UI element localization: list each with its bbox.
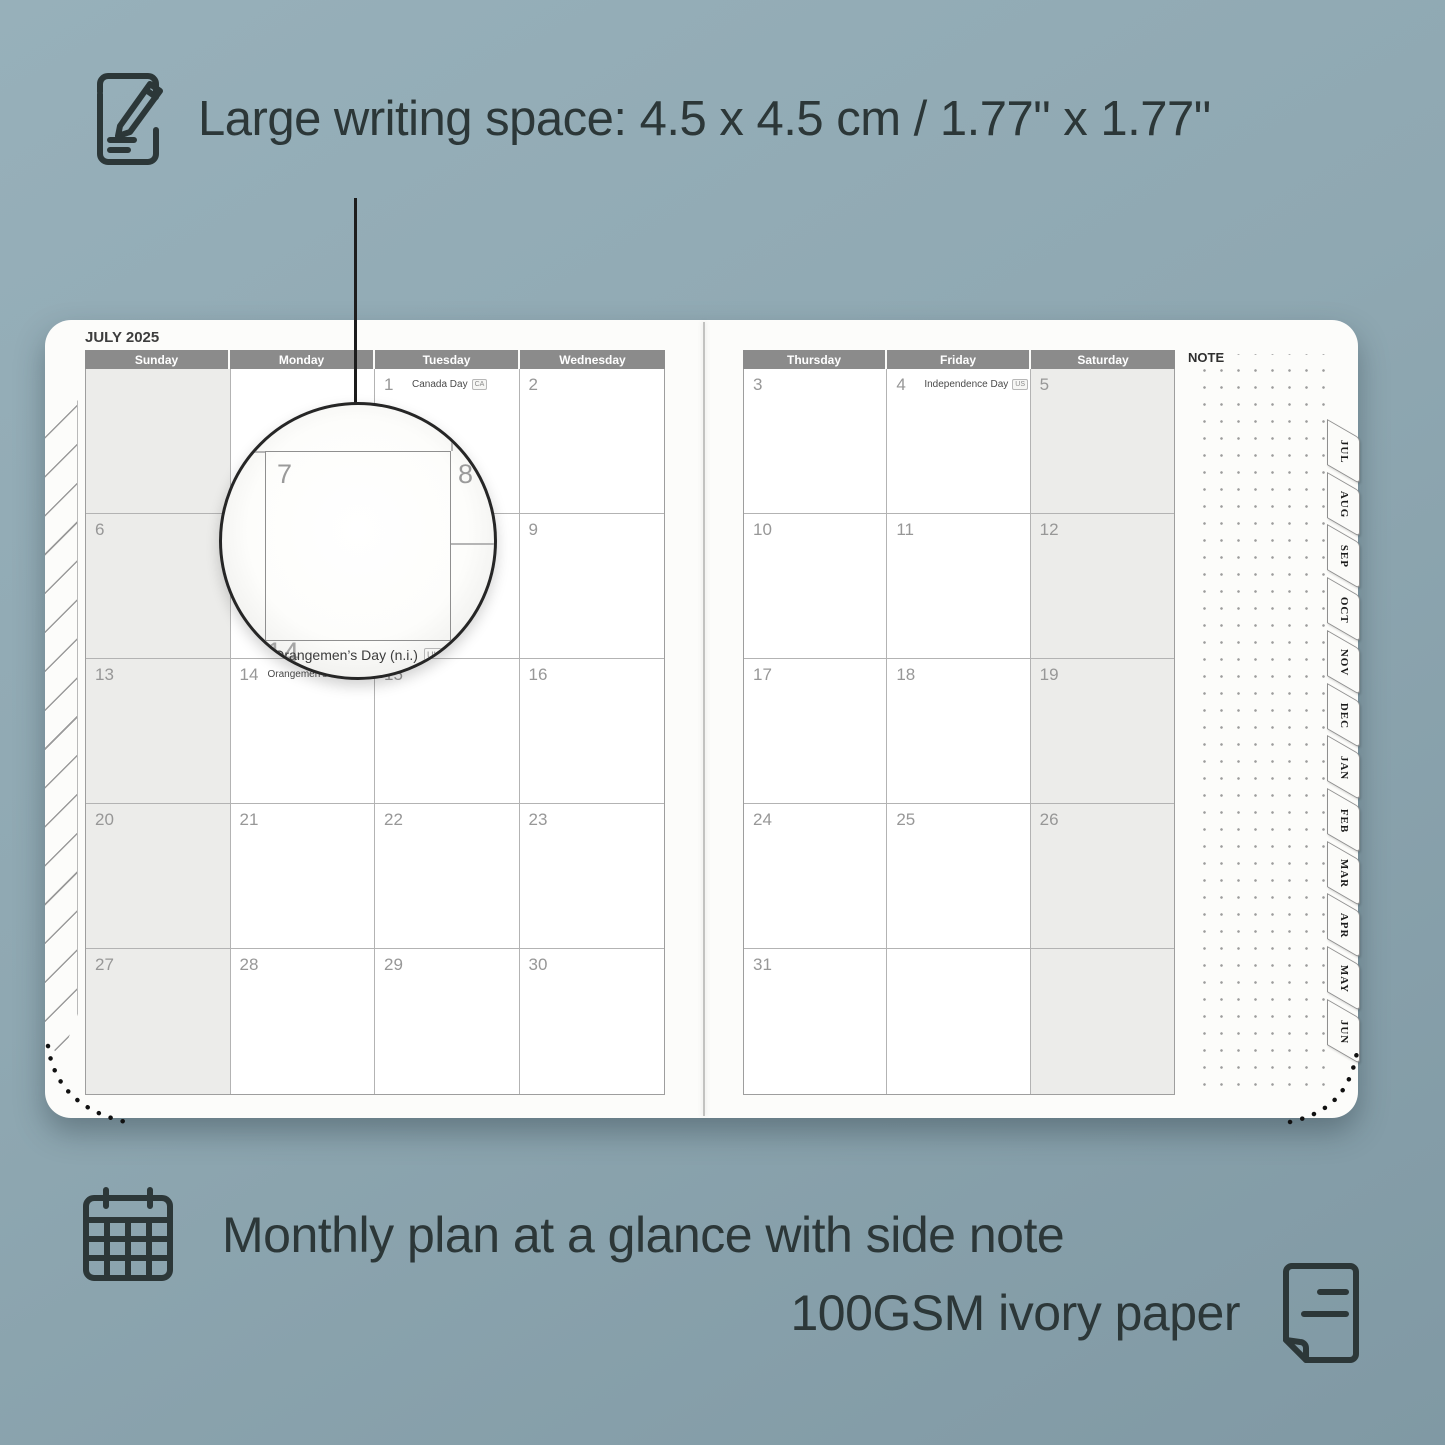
- magnified-day-7: 7: [277, 459, 292, 490]
- day-number: 27: [95, 955, 114, 975]
- day-cell-17: 17: [744, 659, 887, 804]
- day-number: 2: [529, 375, 538, 395]
- weekday-header-sunday: Sunday: [85, 350, 230, 369]
- writing-space-square: [265, 451, 451, 641]
- weekday-header-saturday: Saturday: [1031, 350, 1175, 369]
- day-cell-5: 5: [1031, 369, 1174, 514]
- day-number: 22: [384, 810, 403, 830]
- weekday-header-tuesday: Tuesday: [375, 350, 520, 369]
- day-cell-21: 21: [231, 804, 376, 949]
- month-tab-label: OCT: [1338, 596, 1350, 623]
- weekday-header-wednesday: Wednesday: [520, 350, 665, 369]
- day-number: 29: [384, 955, 403, 975]
- paper-icon: [1280, 1262, 1362, 1364]
- day-cell-empty: [887, 949, 1030, 1094]
- day-cell-25: 25: [887, 804, 1030, 949]
- month-tab-label: SEP: [1338, 545, 1350, 568]
- day-cell-15: 15: [375, 659, 520, 804]
- day-number: 9: [529, 520, 538, 540]
- day-cell-26: 26: [1031, 804, 1174, 949]
- day-cell-22: 22: [375, 804, 520, 949]
- magnified-holiday-text: Orangemen’s Day (n.i.): [274, 647, 418, 663]
- holiday-label: Canada DayCA: [412, 379, 487, 390]
- month-tab-label: MAR: [1338, 858, 1350, 887]
- day-cell-29: 29: [375, 949, 520, 1094]
- day-number: 24: [753, 810, 772, 830]
- calendar-icon: [80, 1186, 176, 1284]
- day-cell-2: 2: [520, 369, 665, 514]
- pencil-note-icon: [86, 70, 170, 168]
- day-number: 20: [95, 810, 114, 830]
- page-edge-hatch: [45, 400, 78, 1060]
- day-cell-3: 3: [744, 369, 887, 514]
- month-tab-label: MAY: [1338, 964, 1350, 992]
- month-title: JULY 2025: [85, 329, 159, 346]
- month-tab-label: NOV: [1338, 649, 1350, 676]
- month-tab-label: DEC: [1338, 702, 1350, 728]
- day-cell-24: 24: [744, 804, 887, 949]
- day-cell-empty: [86, 369, 231, 514]
- grid-line: [222, 451, 265, 453]
- day-cell-10: 10: [744, 514, 887, 659]
- day-cell-11: 11: [887, 514, 1030, 659]
- day-number: 23: [529, 810, 548, 830]
- day-number: 14: [240, 665, 259, 685]
- day-cell-14: 14Orangemen’s Day (n.i.)UK: [231, 659, 376, 804]
- day-number: 13: [95, 665, 114, 685]
- uk-flag-badge: UK: [424, 648, 443, 662]
- day-cell-9: 9: [520, 514, 665, 659]
- month-tab-label: AUG: [1338, 490, 1350, 517]
- ca-flag-badge: CA: [472, 379, 488, 390]
- note-label: NOTE: [1188, 350, 1224, 365]
- note-dot-grid: [1190, 354, 1332, 1090]
- day-number: 12: [1040, 520, 1059, 540]
- day-number: 21: [240, 810, 259, 830]
- day-number: 3: [753, 375, 762, 395]
- day-cell-16: 16: [520, 659, 665, 804]
- day-cell-31: 31: [744, 949, 887, 1094]
- magnified-day-8: 8: [458, 459, 473, 490]
- bottom-banner-2-text: 100GSM ivory paper: [790, 1284, 1240, 1342]
- month-tab-label: JUL: [1338, 440, 1350, 464]
- day-cell-12: 12: [1031, 514, 1174, 659]
- month-tab-label: FEB: [1338, 808, 1350, 832]
- day-number: 19: [1040, 665, 1059, 685]
- day-cell-19: 19: [1031, 659, 1174, 804]
- stitch-arc-right: [1282, 1040, 1382, 1135]
- holiday-text: Independence Day: [924, 379, 1008, 390]
- holiday-label: Independence DayUS: [924, 379, 1028, 390]
- day-number: 6: [95, 520, 104, 540]
- magnified-holiday: Orangemen’s Day (n.i.) UK: [222, 647, 494, 663]
- day-cell-6: 6: [86, 514, 231, 659]
- day-number: 10: [753, 520, 772, 540]
- day-number: 4: [896, 375, 905, 395]
- month-tab-label: APR: [1338, 913, 1350, 939]
- day-cell-30: 30: [520, 949, 665, 1094]
- bottom-banner-2: 100GSM ivory paper: [790, 1262, 1362, 1364]
- day-number: 16: [529, 665, 548, 685]
- callout-line: [354, 198, 357, 413]
- day-number: 11: [896, 520, 914, 540]
- day-cell-28: 28: [231, 949, 376, 1094]
- calendar-right-page: ThursdayFridaySaturday34Independence Day…: [743, 350, 1175, 1095]
- day-number: 30: [529, 955, 548, 975]
- day-cell-20: 20: [86, 804, 231, 949]
- day-cell-empty: [1031, 949, 1174, 1094]
- day-number: 17: [753, 665, 772, 685]
- weekday-header-thursday: Thursday: [743, 350, 887, 369]
- day-number: 28: [240, 955, 259, 975]
- weekday-header-friday: Friday: [887, 350, 1031, 369]
- spine-divider: [703, 322, 705, 1116]
- day-cell-18: 18: [887, 659, 1030, 804]
- month-tab-label: JAN: [1338, 756, 1350, 780]
- day-number: 26: [1040, 810, 1059, 830]
- grid-line: [451, 405, 453, 451]
- day-cell-23: 23: [520, 804, 665, 949]
- stitch-arc-left: [40, 1040, 140, 1135]
- magnifier-circle: 7 8 14 Orangemen’s Day (n.i.) UK: [219, 402, 497, 680]
- top-banner-text: Large writing space: 4.5 x 4.5 cm / 1.77…: [198, 91, 1211, 147]
- day-number: 31: [753, 955, 772, 975]
- day-cell-13: 13: [86, 659, 231, 804]
- bottom-banner-1-text: Monthly plan at a glance with side note: [222, 1206, 1064, 1264]
- grid-line: [451, 543, 497, 545]
- day-number: 18: [896, 665, 915, 685]
- top-banner: Large writing space: 4.5 x 4.5 cm / 1.77…: [86, 70, 1211, 168]
- day-number: 1: [384, 375, 393, 395]
- day-number: 25: [896, 810, 915, 830]
- holiday-text: Canada Day: [412, 379, 468, 390]
- day-number: 5: [1040, 375, 1049, 395]
- day-cell-4: 4Independence DayUS: [887, 369, 1030, 514]
- product-image: Large writing space: 4.5 x 4.5 cm / 1.77…: [0, 0, 1445, 1445]
- us-flag-badge: US: [1012, 379, 1028, 390]
